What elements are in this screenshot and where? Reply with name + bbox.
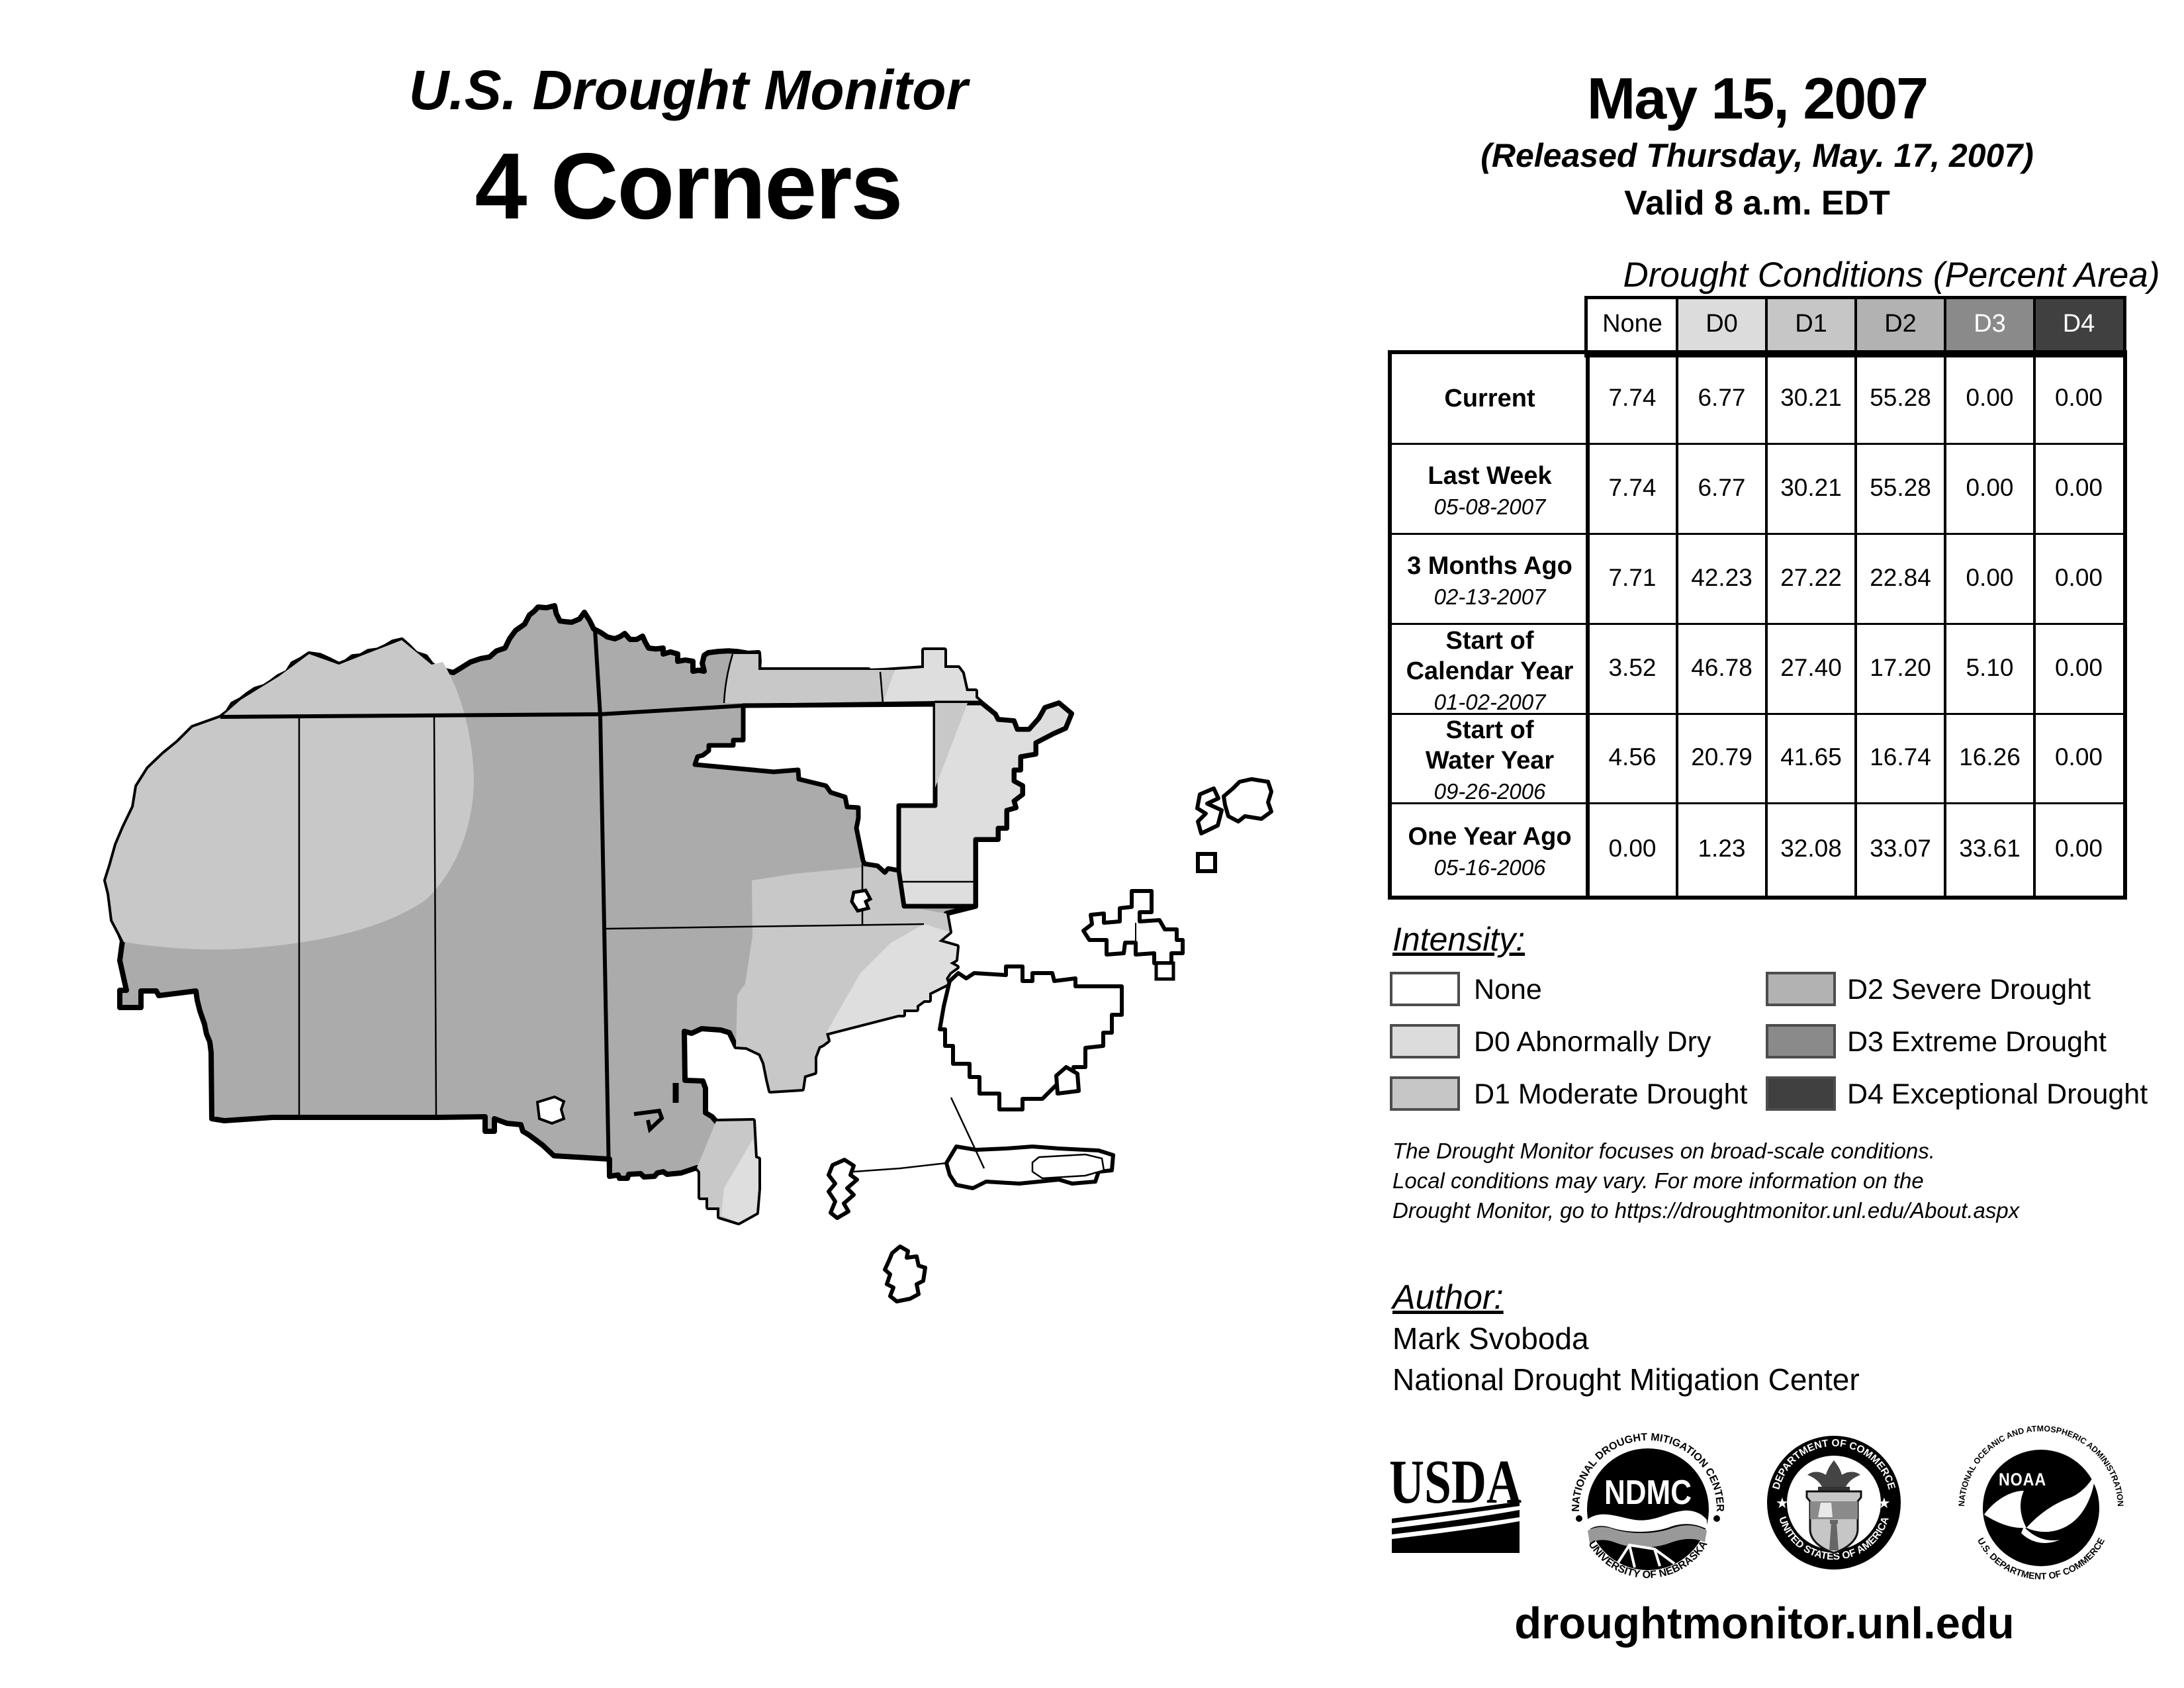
svg-text:NDMC: NDMC bbox=[1604, 1474, 1692, 1512]
svg-text:NOAA: NOAA bbox=[1999, 1470, 2046, 1489]
svg-text:★: ★ bbox=[1878, 1495, 1891, 1511]
svg-text:★: ★ bbox=[1776, 1495, 1789, 1511]
